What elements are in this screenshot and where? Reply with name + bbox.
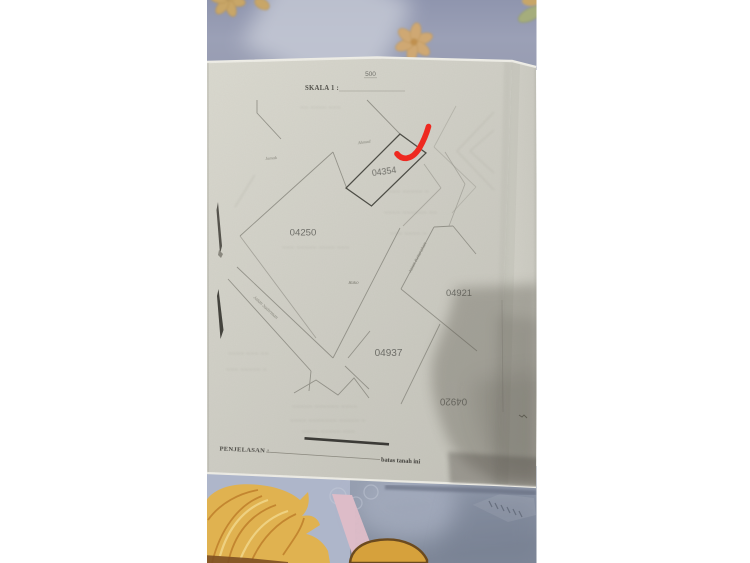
svg-text:~~~ ~~~~~ ~: ~~~ ~~~~~ ~ [226,367,267,374]
svg-text:Ruko: Ruko [347,281,359,286]
svg-text:~~~~ ~~~~~~ ~~: ~~~~ ~~~~~~ ~~ [384,210,437,217]
svg-text:04250: 04250 [290,228,317,239]
svg-text:~~~~ ~~~ ~~: ~~~~ ~~~ ~~ [228,351,269,358]
svg-text:~~~~ ~~~~~ ~~~: ~~~~ ~~~~~ ~~~ [302,429,355,436]
svg-text:~~ ~~~~ ~~~: ~~ ~~~~ ~~~ [300,105,341,112]
svg-text:SKALA 1 :: SKALA 1 : [305,85,339,92]
svg-text:~~~ ~~~~~ ~~~~ ~~~: ~~~ ~~~~~ ~~~~ ~~~ [282,245,349,252]
svg-text:~~~~ ~~~~~~~ ~~~~~ ~: ~~~~ ~~~~~~~ ~~~~~ ~ [290,418,365,425]
svg-text:500: 500 [365,71,376,78]
svg-text:~~~~~ ~~~~~~ ~~~~: ~~~~~ ~~~~~~ ~~~~ [292,404,357,411]
svg-text:04937: 04937 [375,348,403,359]
svg-text:~~~ ~~~~~ ~: ~~~ ~~~~~ ~ [388,189,429,196]
